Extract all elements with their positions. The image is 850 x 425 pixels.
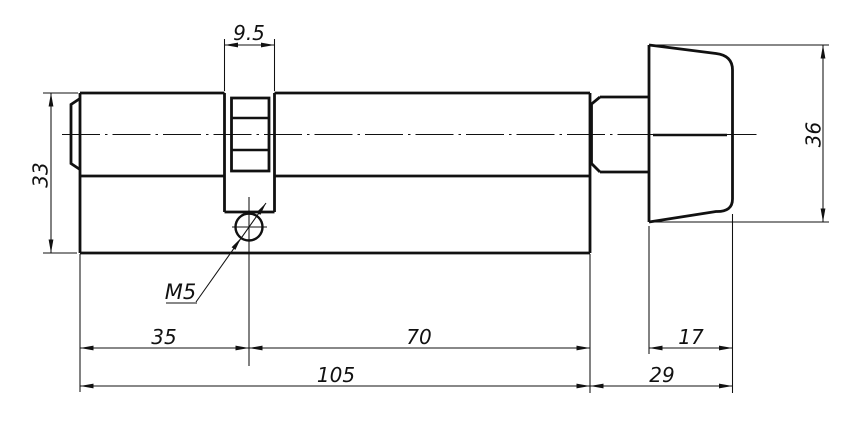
arrowhead-down xyxy=(821,209,826,223)
arrowhead-left xyxy=(80,384,94,389)
dimension-knob-height: 36 xyxy=(652,45,829,222)
arrowhead-down xyxy=(49,240,54,254)
arrowhead-right xyxy=(577,346,591,351)
thread-callout-label: M5 xyxy=(165,280,196,304)
arrowhead-up xyxy=(821,45,826,59)
arrowhead-left xyxy=(80,346,94,351)
total-length-label: 105 xyxy=(317,363,355,387)
technical-drawing-canvas: M5 9.5 33 36 35 xyxy=(0,0,850,425)
knob-grip-label: 17 xyxy=(678,325,704,349)
dimension-cam-width: 9.5 xyxy=(225,21,275,91)
arrowhead-right xyxy=(236,346,250,351)
cam-width-label: 9.5 xyxy=(233,21,265,45)
arrowhead-left xyxy=(649,346,663,351)
knob-profile xyxy=(649,45,733,222)
dimension-segment-left: 35 xyxy=(80,325,249,350)
arrowhead-left xyxy=(249,346,263,351)
dimension-knob-depth: 29 xyxy=(590,363,733,388)
knob-height-label: 36 xyxy=(802,122,826,147)
leader-arrowhead-lower xyxy=(232,238,241,250)
body-height-label: 33 xyxy=(29,162,53,187)
arrowhead-left xyxy=(590,384,604,389)
arrowhead-right xyxy=(719,384,733,389)
dimension-segment-right: 70 xyxy=(249,325,590,350)
thumbturn-knob xyxy=(649,45,733,222)
right-segment-label: 70 xyxy=(406,325,431,349)
arrowhead-right xyxy=(577,384,591,389)
left-segment-label: 35 xyxy=(151,325,176,349)
cylinder-body-outline xyxy=(71,93,590,253)
arrowhead-right xyxy=(719,346,733,351)
cam-slot-and-cam xyxy=(225,93,275,212)
dimension-total-length: 105 xyxy=(80,363,590,388)
drawing-sheet: M5 9.5 33 36 35 xyxy=(0,0,850,425)
knob-depth-label: 29 xyxy=(649,363,674,387)
dimension-knob-grip: 17 xyxy=(649,325,733,350)
arrowhead-up xyxy=(49,93,54,107)
